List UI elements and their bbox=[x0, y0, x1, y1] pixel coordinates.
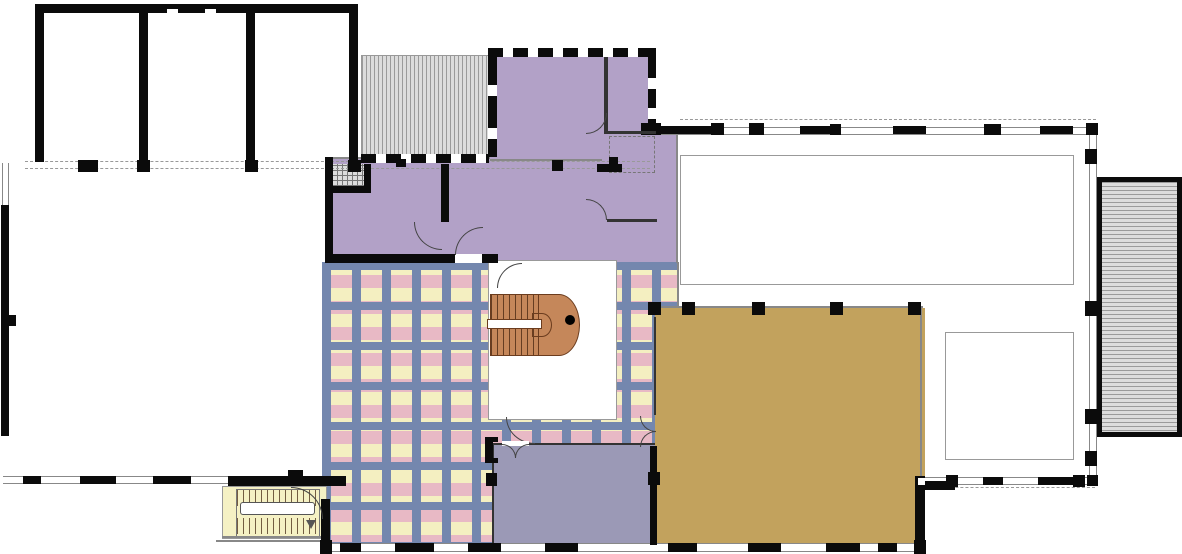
west-south-wall-seg-3 bbox=[153, 476, 191, 484]
gold-west-wall-thick bbox=[650, 446, 657, 545]
gold-west-column bbox=[648, 472, 660, 485]
column-dot bbox=[565, 315, 575, 325]
east-south-column-1 bbox=[946, 475, 958, 487]
plaid-east-edge bbox=[677, 262, 679, 308]
wall-tick-1 bbox=[396, 159, 406, 167]
wall-foot-1 bbox=[78, 160, 98, 172]
lavender-left-window-2 bbox=[488, 128, 497, 139]
gold-east-wall-notch bbox=[918, 478, 925, 485]
lavender-strip bbox=[656, 133, 678, 263]
east-south-wall-seg-1 bbox=[983, 477, 1003, 485]
lavender-right-window-2 bbox=[648, 108, 656, 119]
nw-block-top-wall bbox=[35, 4, 358, 13]
nw-top-wall-opening-1 bbox=[167, 9, 178, 13]
lavender-strip-east-edge bbox=[676, 133, 678, 263]
south-wall-seg-2 bbox=[395, 543, 434, 552]
door-frame-bracket-b bbox=[609, 157, 618, 165]
slate-room bbox=[492, 443, 657, 547]
nw-block-divider-wall-2 bbox=[246, 12, 255, 162]
door-frame-bracket-a bbox=[597, 164, 622, 172]
south-wall-seg-5 bbox=[668, 543, 697, 552]
gold-column-5 bbox=[908, 302, 921, 315]
gold-hall bbox=[655, 308, 925, 545]
sw-stair-lower-run bbox=[237, 518, 317, 534]
south-wall-seg-6 bbox=[748, 543, 781, 552]
lavender-right-window-1 bbox=[648, 78, 656, 89]
sw-stair-right-wall bbox=[321, 499, 330, 545]
sw-stair-top-wall bbox=[228, 476, 346, 486]
east-north-column-2 bbox=[749, 123, 764, 135]
east-se-corner bbox=[1087, 475, 1098, 486]
floor-plan bbox=[0, 0, 1182, 554]
sw-stair-bottom-line-2 bbox=[216, 540, 328, 542]
east-deck bbox=[1097, 177, 1182, 437]
lavender-main-left-wall bbox=[488, 48, 497, 157]
lavender-west-left-wall bbox=[325, 157, 333, 263]
east-wall-column-1 bbox=[1085, 149, 1097, 164]
east-north-column-1 bbox=[711, 123, 724, 135]
south-wall-corner-left bbox=[320, 540, 332, 554]
south-wall-corner-right bbox=[914, 540, 926, 554]
nw-block-divider-wall-1 bbox=[139, 12, 148, 162]
gold-column-2 bbox=[682, 302, 695, 315]
east-north-wall-seg-3 bbox=[1040, 126, 1073, 134]
gold-east-edge bbox=[920, 308, 922, 478]
south-wall-seg-3 bbox=[468, 543, 501, 552]
lavender-main-top-curtain-wall bbox=[488, 48, 656, 57]
wall-foot-4 bbox=[348, 160, 361, 172]
north-deck-south-curtain-wall bbox=[361, 154, 489, 163]
lavender-left-window-1 bbox=[488, 85, 497, 96]
nw-block-right-wall bbox=[349, 4, 358, 162]
east-north-wall-seg-0 bbox=[656, 126, 712, 134]
south-wall-seg-1 bbox=[340, 543, 361, 552]
u-stair-slot bbox=[487, 319, 542, 329]
sw-stair-tick bbox=[288, 470, 303, 477]
east-south-wall-seg-2 bbox=[1038, 477, 1073, 485]
nw-top-wall-opening-2 bbox=[205, 9, 216, 13]
lavender-main-partition-h2 bbox=[607, 219, 657, 222]
south-wall-seg-8 bbox=[878, 543, 897, 552]
shaft-bottom-wall bbox=[332, 186, 371, 193]
west-south-wall-seg-2 bbox=[80, 476, 116, 484]
east-wing-void-large bbox=[680, 155, 1074, 285]
north-deck bbox=[361, 55, 490, 158]
gold-column-1 bbox=[648, 302, 661, 315]
west-wall-tick bbox=[7, 315, 16, 326]
gold-column-4 bbox=[830, 302, 843, 315]
slate-left-column bbox=[486, 473, 497, 486]
lavender-west-door-gap bbox=[455, 254, 482, 263]
gold-west-edge bbox=[654, 317, 656, 415]
west-south-wall-seg-1 bbox=[23, 476, 41, 484]
east-north-column-3 bbox=[830, 124, 841, 135]
east-wall-column-3 bbox=[1085, 409, 1097, 424]
gold-east-wall-thick bbox=[915, 476, 925, 545]
east-ne-corner bbox=[1086, 123, 1098, 135]
east-north-wall-seg-2 bbox=[893, 126, 926, 134]
east-wing-void-small bbox=[945, 332, 1074, 460]
east-wall-column-4 bbox=[1085, 451, 1097, 466]
wall-foot-3 bbox=[245, 160, 258, 172]
gold-top-line bbox=[655, 306, 923, 308]
east-wall-column-2 bbox=[1085, 301, 1097, 316]
sw-stair-arrow bbox=[306, 520, 316, 529]
lavender-column bbox=[552, 160, 563, 171]
east-south-column-2 bbox=[1073, 475, 1085, 487]
south-wall-seg-7 bbox=[826, 543, 860, 552]
slate-door-frame-bracket bbox=[485, 437, 498, 463]
west-wall-thin bbox=[2, 163, 9, 211]
south-wall-seg-4 bbox=[545, 543, 578, 552]
gold-column-3 bbox=[752, 302, 765, 315]
nw-block-left-wall bbox=[35, 4, 44, 162]
lavender-main-thin-wall bbox=[490, 159, 602, 161]
lavender-west-partition bbox=[441, 164, 449, 222]
wall-foot-2 bbox=[137, 160, 150, 172]
sw-stair-bottom-line bbox=[222, 536, 325, 538]
east-north-wall-seg-1 bbox=[800, 126, 831, 134]
east-north-column-4 bbox=[984, 124, 1001, 135]
east-wing-north-dashed bbox=[680, 119, 1096, 120]
lavender-main-right-wall bbox=[648, 48, 656, 134]
